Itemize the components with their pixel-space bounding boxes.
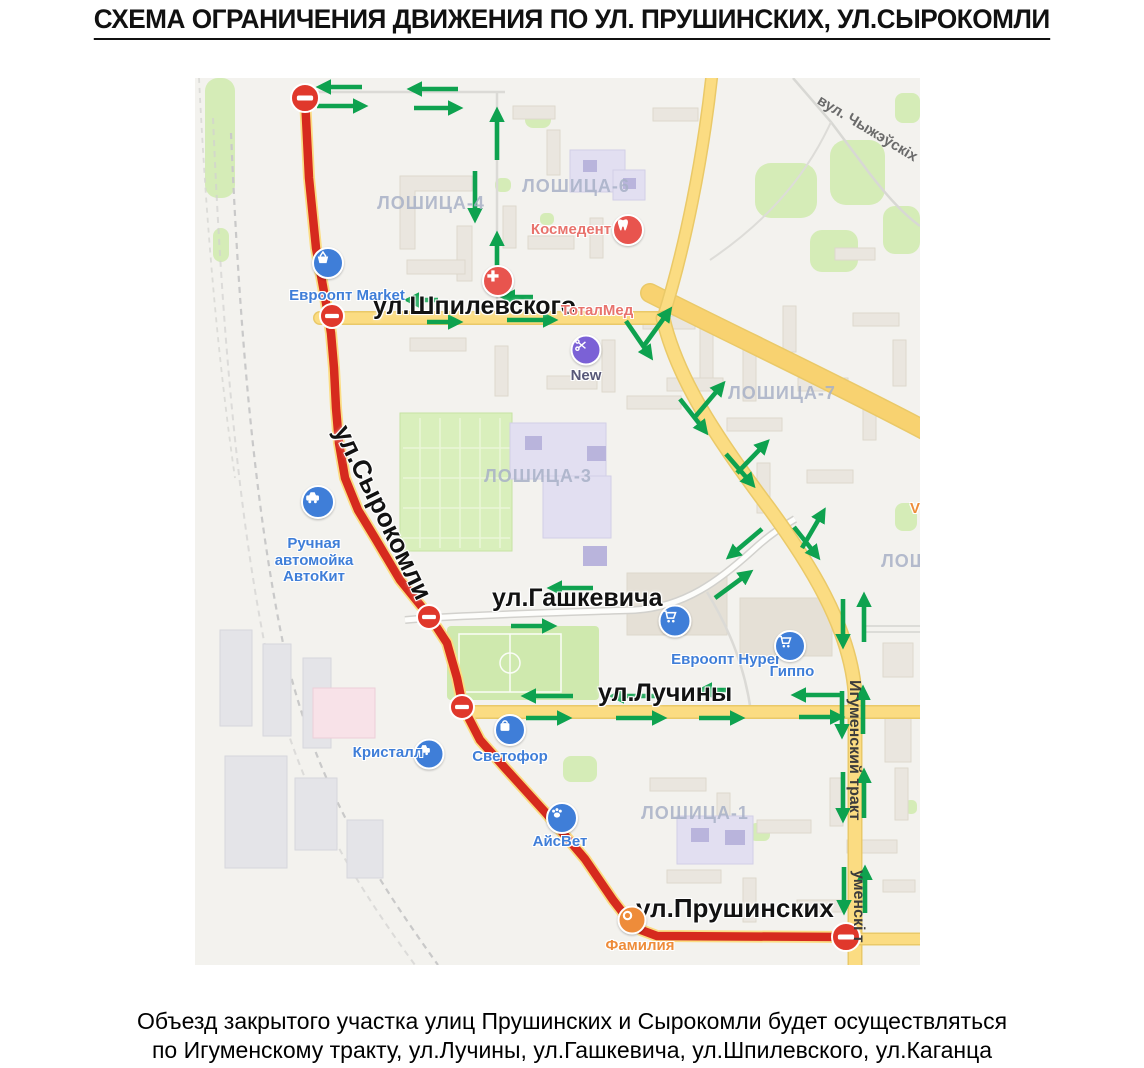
poi-label-line: Космедент bbox=[531, 222, 611, 239]
paw-icon bbox=[546, 802, 578, 834]
road-name-label: Игуменский тракт bbox=[845, 680, 863, 821]
poi-label: РучнаяавтомойкаАвтоКит bbox=[275, 536, 354, 586]
poi-label: V bbox=[910, 501, 920, 518]
poi-label-line: Светофор bbox=[472, 749, 548, 766]
poi-label: Евроопт Market bbox=[289, 288, 405, 305]
poi-label: Фамилия bbox=[606, 938, 675, 955]
poi-label-line: New bbox=[571, 368, 602, 385]
tooth-icon bbox=[612, 214, 644, 246]
poi-label: Евроопт Hyper bbox=[671, 652, 781, 669]
cart-icon bbox=[774, 630, 806, 662]
poi-label-line: V bbox=[910, 501, 920, 518]
street-label: ул.Прушинских bbox=[636, 893, 834, 924]
street-label: ул.Гашкевича bbox=[492, 584, 663, 613]
poi-label-line: АвтоКит bbox=[275, 569, 354, 586]
bag-icon bbox=[494, 714, 526, 746]
street-label: ул.Лучины bbox=[598, 679, 732, 708]
district-label: ЛОШИЦА-4 bbox=[377, 193, 485, 214]
car-icon bbox=[301, 485, 335, 519]
district-label: ЛОШ bbox=[881, 551, 920, 572]
poi-label: New bbox=[571, 368, 602, 385]
road-name-label: вул. Чыжэўскіх bbox=[814, 92, 920, 165]
poi-label-line: Ручная bbox=[275, 536, 354, 553]
road-name-label: уменскі т bbox=[849, 870, 867, 943]
traffic-restriction-map: ул.Шпилевскогоул.Сырокомлиул.Гашкевичаул… bbox=[195, 78, 920, 965]
title-wrap: СХЕМА ОГРАНИЧЕНИЯ ДВИЖЕНИЯ ПО УЛ. ПРУШИН… bbox=[0, 4, 1144, 40]
poi-label: Светофор bbox=[472, 749, 548, 766]
poi-label: Космедент bbox=[531, 222, 611, 239]
scissors-icon bbox=[571, 335, 602, 366]
district-label: ЛОШИЦА-3 bbox=[484, 466, 592, 487]
ring-icon bbox=[618, 906, 647, 935]
poi-label-line: Евроопт Hyper bbox=[671, 652, 781, 669]
poi-label: ТоталМед bbox=[561, 303, 634, 320]
poi-label-line: Фамилия bbox=[606, 938, 675, 955]
poi-label-line: Евроопт Market bbox=[289, 288, 405, 305]
cart-icon bbox=[659, 605, 692, 638]
poi-label-line: Кристалл bbox=[353, 745, 424, 762]
poi-label: Кристалл bbox=[353, 745, 424, 762]
page: СХЕМА ОГРАНИЧЕНИЯ ДВИЖЕНИЯ ПО УЛ. ПРУШИН… bbox=[0, 0, 1144, 1068]
district-label: ЛОШИЦА-6 bbox=[522, 176, 630, 197]
district-label: ЛОШИЦА-1 bbox=[641, 803, 749, 824]
basket-icon bbox=[312, 247, 344, 279]
poi-label-line: ТоталМед bbox=[561, 303, 634, 320]
poi-label-line: Гиппо bbox=[770, 664, 815, 681]
poi-label: Гиппо bbox=[770, 664, 815, 681]
poi-label-line: АйсВет bbox=[533, 834, 588, 851]
map-labels-layer: ул.Шпилевскогоул.Сырокомлиул.Гашкевичаул… bbox=[195, 78, 920, 965]
caption-line-1: Объезд закрытого участка улиц Прушинских… bbox=[0, 1008, 1144, 1035]
poi-label: АйсВет bbox=[533, 834, 588, 851]
poi-label-line: автомойка bbox=[275, 553, 354, 570]
caption-line-2: по Игуменскому тракту, ул.Лучины, ул.Гаш… bbox=[0, 1037, 1144, 1064]
district-label: ЛОШИЦА-7 bbox=[728, 383, 836, 404]
cross-icon bbox=[482, 265, 514, 297]
page-title: СХЕМА ОГРАНИЧЕНИЯ ДВИЖЕНИЯ ПО УЛ. ПРУШИН… bbox=[94, 4, 1050, 40]
